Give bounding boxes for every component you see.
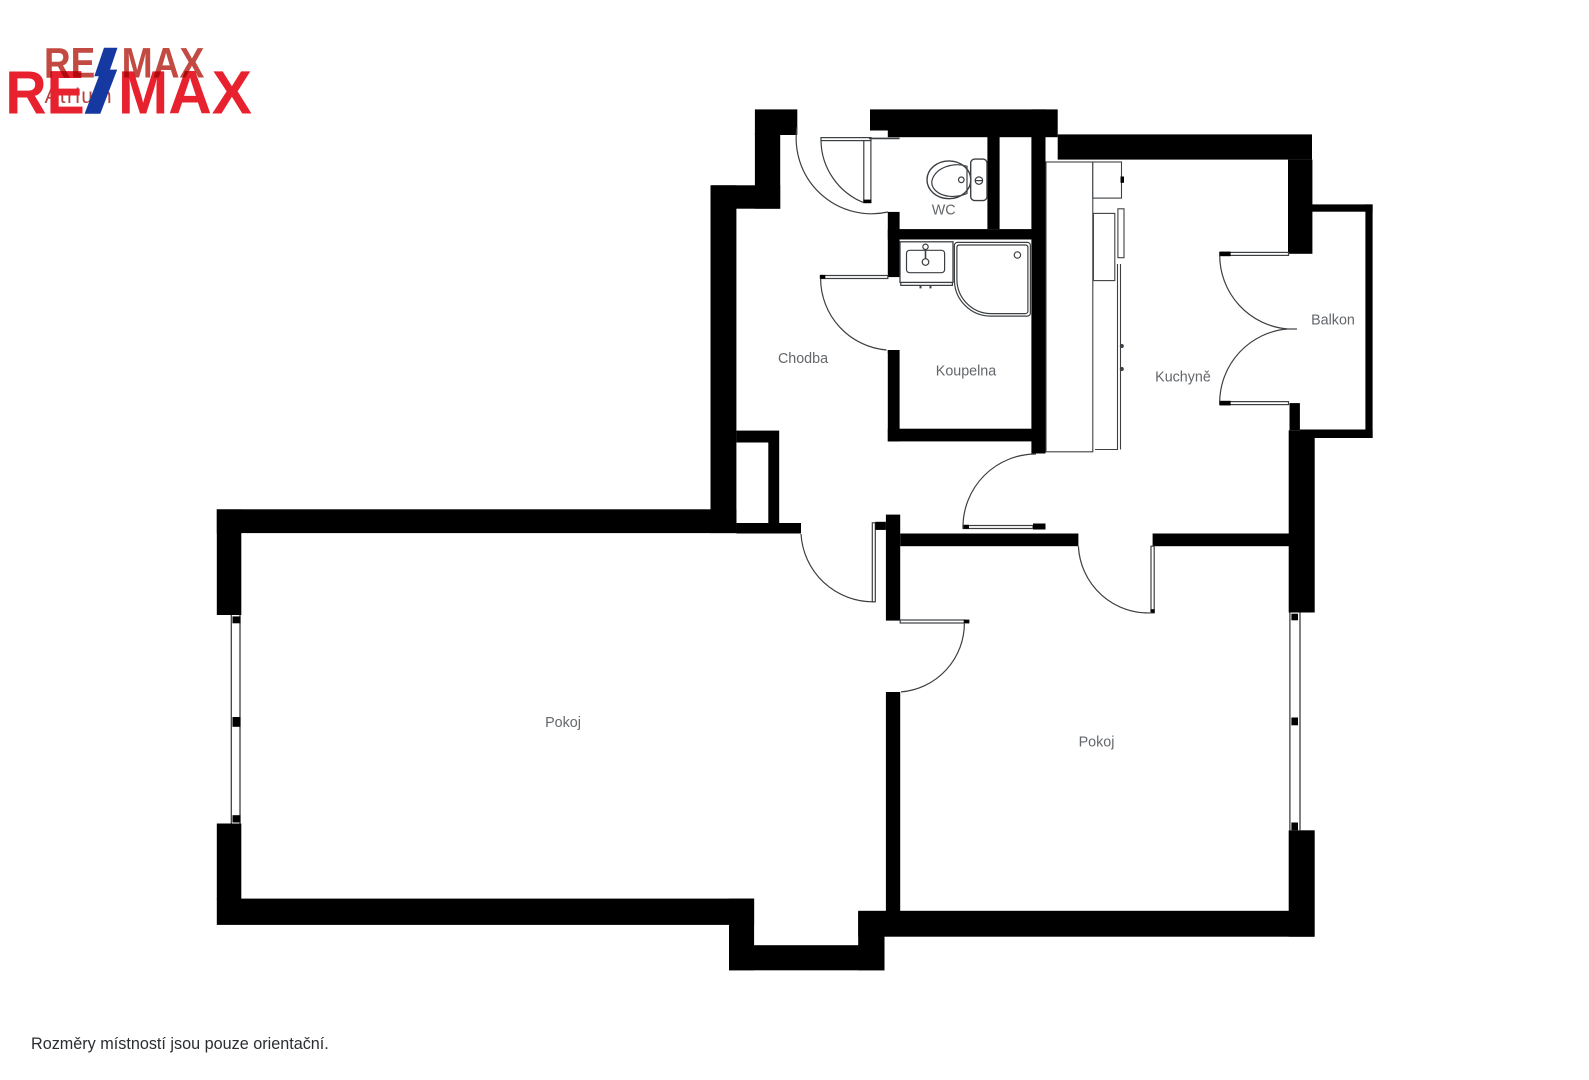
svg-text:Rozměry místností jsou pouze o: Rozměry místností jsou pouze orientační. (31, 1035, 329, 1053)
svg-text:Pokoj: Pokoj (1079, 735, 1115, 751)
svg-text:RE: RE (44, 40, 95, 88)
svg-text:Koupelna: Koupelna (936, 364, 996, 380)
svg-text:WC: WC (932, 203, 956, 219)
svg-text:Chodba: Chodba (778, 351, 828, 367)
svg-text:Pokoj: Pokoj (545, 715, 581, 731)
svg-text:Kuchyně: Kuchyně (1155, 370, 1211, 386)
svg-text:MAX: MAX (122, 40, 205, 88)
svg-text:Balkon: Balkon (1311, 313, 1355, 329)
